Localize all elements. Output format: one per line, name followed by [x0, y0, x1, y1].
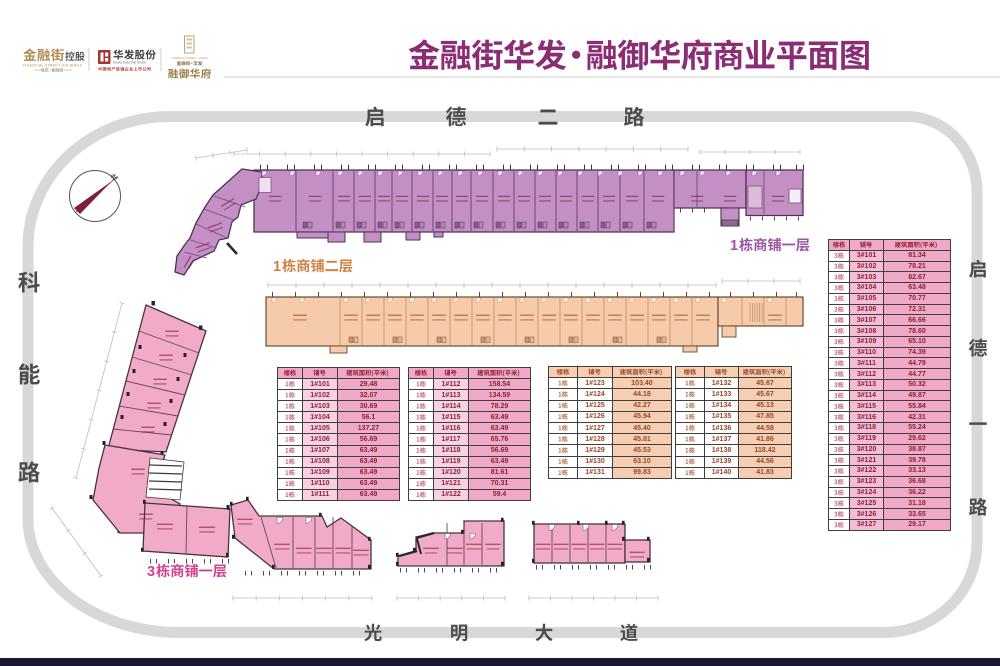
svg-text:1: 1	[273, 259, 281, 275]
svg-text:FINANCIAL STREET HOLDINGS: FINANCIAL STREET HOLDINGS	[23, 64, 82, 68]
svg-text:3: 3	[147, 564, 155, 580]
svg-text:FINANCIAL STREET · HUAFA: FINANCIAL STREET · HUAFA	[171, 56, 208, 60]
svg-text:1: 1	[730, 238, 738, 254]
svg-text:Huafa Industrial Share: Huafa Industrial Share	[113, 61, 146, 65]
